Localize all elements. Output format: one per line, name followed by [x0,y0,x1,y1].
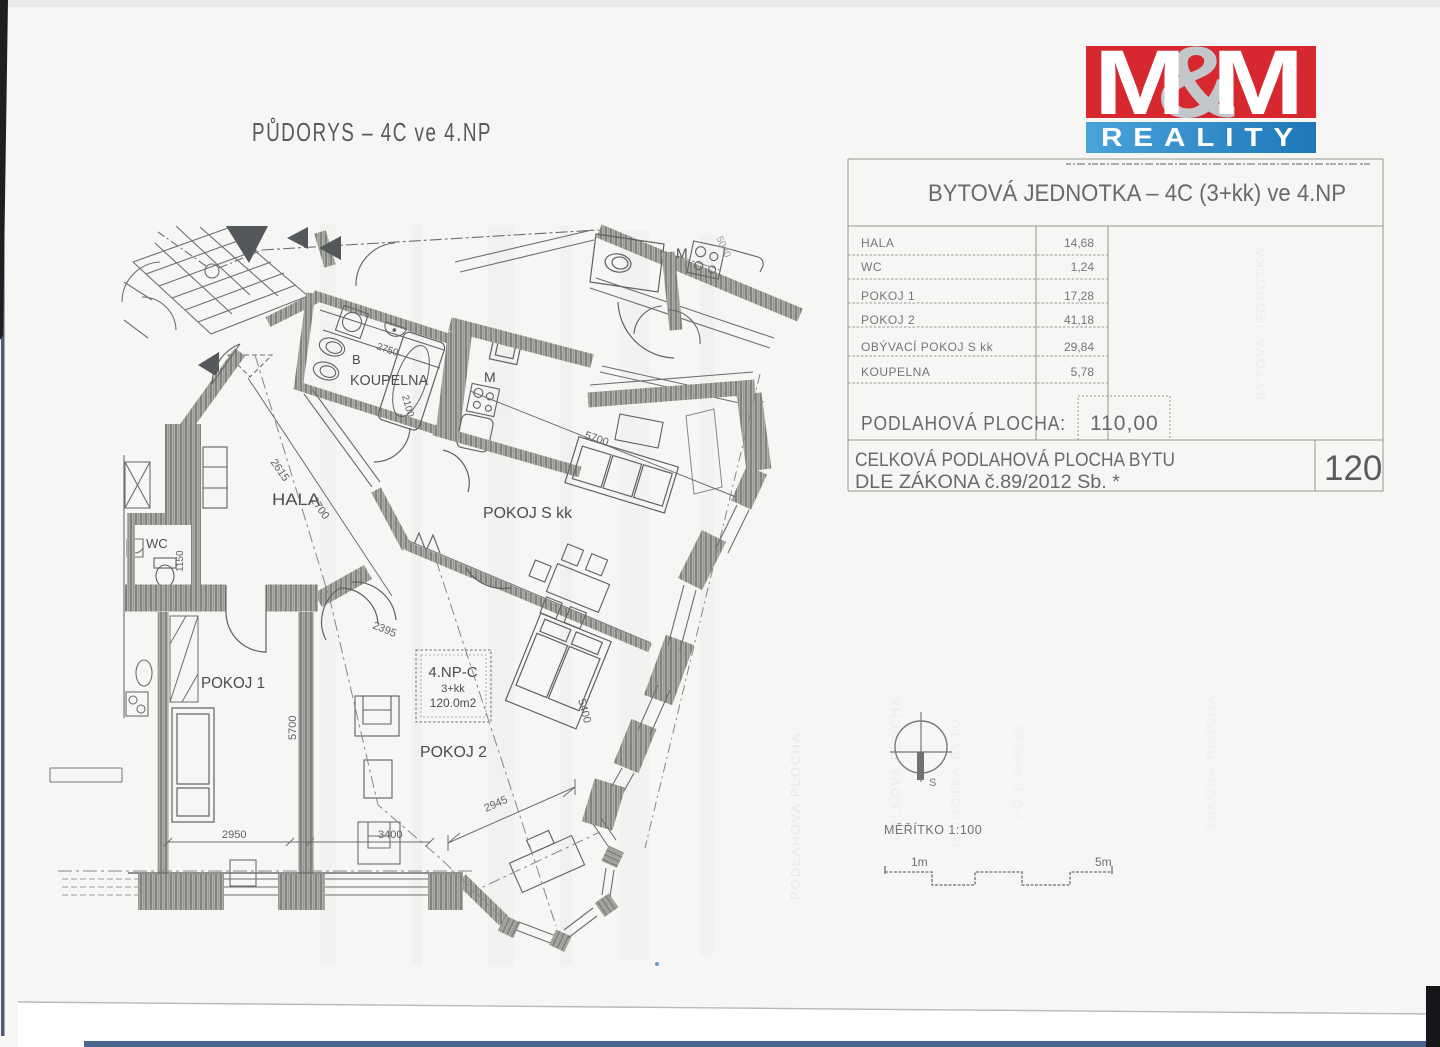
svg-text:S: S [929,777,936,789]
svg-text:WC: WC [861,260,882,274]
svg-text:2950: 2950 [222,829,246,841]
svg-text:REALITY: REALITY [1101,122,1304,152]
svg-text:POKOJ S kk: POKOJ S kk [483,505,573,522]
svg-text:POKOJ 1: POKOJ 1 [201,675,265,692]
svg-text:29,84: 29,84 [1064,340,1094,354]
svg-text:KOUPELNA: KOUPELNA [350,372,428,389]
svg-text:WC: WC [146,536,168,551]
svg-text:120: 120 [1324,449,1382,488]
svg-text:BYTOVÁ JEDNOTKA – 4C (3+kk): BYTOVÁ JEDNOTKA – 4C (3+kk) ve 4.NP [928,180,1346,207]
svg-text:PODLAHOVÁ PLOCHA:: PODLAHOVÁ PLOCHA: [861,412,1066,435]
svg-text:M: M [676,245,688,261]
svg-text:1150: 1150 [175,550,186,572]
svg-text:110,00: 110,00 [1090,412,1159,435]
svg-text:120.0m2: 120.0m2 [430,696,477,710]
svg-text:M: M [1094,32,1186,134]
svg-text:14,68: 14,68 [1064,236,1094,250]
svg-text:KOUPELNA: KOUPELNA [861,365,930,379]
svg-text:5m: 5m [1095,855,1112,869]
svg-text:1,24: 1,24 [1071,260,1095,274]
svg-text:41,18: 41,18 [1064,313,1094,327]
svg-text:5700: 5700 [287,716,299,740]
svg-text:JEDNOTKA BYTU: JEDNOTKA BYTU [948,717,963,850]
svg-text:DLE ZÁKONA č.89/2012 Sb. *: DLE ZÁKONA č.89/2012 Sb. * [855,472,1121,493]
svg-text:OBÝVACÍ POKOJ S kk: OBÝVACÍ POKOJ S kk [861,339,994,354]
svg-text:PŮDORYS – 4C ve 4.NP: PŮDORYS – 4C ve 4.NP [252,116,492,147]
svg-text:POKOJ 2: POKOJ 2 [420,744,487,761]
svg-text:5,78: 5,78 [1071,365,1095,379]
svg-text:HALA: HALA [861,236,894,250]
svg-text:ZAKONA PLOCHA: ZAKONA PLOCHA [1203,694,1218,830]
svg-text:PODLAHOVA: PODLAHOVA [1010,722,1025,820]
svg-text:17,28: 17,28 [1064,289,1094,303]
svg-text:M: M [1212,32,1304,134]
svg-text:POKOJ 2: POKOJ 2 [861,313,915,327]
svg-text:CELKOVA PLOCHA: CELKOVA PLOCHA [888,695,903,840]
svg-text:POKOJ 1: POKOJ 1 [861,289,915,303]
svg-text:3+kk: 3+kk [441,683,465,695]
svg-text:1m: 1m [911,855,928,869]
svg-text:M: M [484,369,496,385]
svg-text:BYTOVA JEDNOTKA: BYTOVA JEDNOTKA [1253,246,1268,400]
svg-text:CELKOVÁ PODLAHOVÁ PLOCHA BYTU: CELKOVÁ PODLAHOVÁ PLOCHA BYTU [855,450,1175,471]
svg-text:B: B [352,352,361,367]
svg-text:PODLAHOVA PLOCHA: PODLAHOVA PLOCHA [788,732,803,900]
svg-text:4.NP-C: 4.NP-C [428,664,477,681]
svg-text:3400: 3400 [378,829,402,841]
